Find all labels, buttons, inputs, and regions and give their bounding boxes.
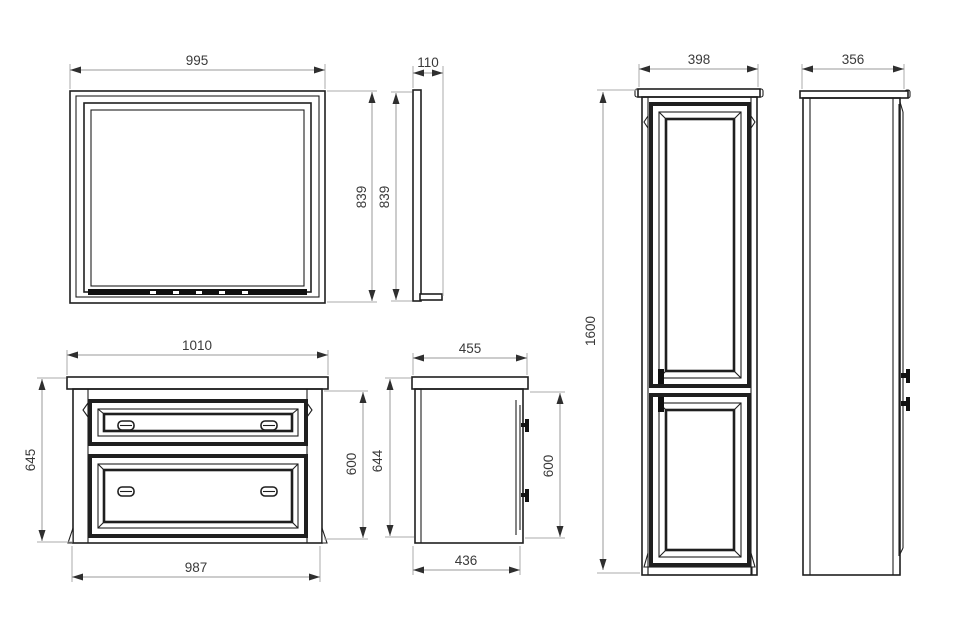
mirror-height-label: 839 [354,186,369,209]
tall-side-crown [800,90,910,98]
vanity-side-height-label: 644 [370,449,385,472]
vanity-top-width-label: 1010 [182,338,212,353]
drawer-handle [261,421,277,430]
dim-mirror-height-front: 839 [327,91,377,302]
tall-side-handles [901,369,910,411]
tall-front-lower-door [651,395,749,565]
vanity-body-depth-label: 436 [455,553,478,568]
furniture-dimension-drawing: 995 839 110 839 [0,0,960,640]
dim-vanity-overall-height: 645 [23,378,72,542]
dim-tall-width: 398 [639,52,758,87]
mirror-depth-label: 110 [417,55,439,70]
dim-mirror-height-side: 839 [377,92,412,301]
drawer-handle [118,487,134,496]
vanity-side-view: 455 644 600 436 [370,341,565,575]
dim-vanity-body-width: 987 [72,546,320,582]
technical-drawing-canvas: 995 839 110 839 [0,0,960,640]
dim-vanity-top-depth: 455 [413,341,527,375]
drawer-handle [118,421,134,430]
tall-side-body [803,98,900,575]
mirror-width-label: 995 [186,53,209,68]
dim-vanity-body-depth: 436 [413,546,520,575]
tall-cabinet-front-view: 398 1600 [583,52,763,575]
tall-door-handle [658,397,664,412]
vanity-side-body [415,389,523,543]
drawer-handle [261,487,277,496]
vanity-countertop [67,377,328,389]
dim-mirror-width: 995 [70,53,325,89]
vanity-height-label: 645 [23,449,38,472]
vanity-side-body-height-label: 600 [541,455,556,478]
tall-front-crown [635,89,763,97]
mirror-side-height-label: 839 [377,186,392,209]
mirror-front-view: 995 839 [70,53,377,303]
dim-tall-height: 1600 [583,90,640,573]
tall-front-upper-door [651,104,749,386]
tall-cabinet-side-view: 356 [800,52,910,575]
dim-vanity-top-width: 1010 [67,338,328,375]
vanity-body-width-label: 987 [185,560,208,575]
dim-tall-depth: 356 [802,52,904,89]
dim-vanity-side-overall-height: 644 [370,378,414,537]
tall-width-label: 398 [688,52,711,67]
tall-depth-label: 356 [842,52,865,67]
mirror-frame [70,91,325,303]
vanity-drawer-top [90,401,306,444]
vanity-drawer-bottom [90,456,306,536]
mirror-side-view: 110 839 [377,55,443,301]
dim-vanity-body-height: 600 [324,391,368,539]
dim-vanity-side-body-height: 600 [525,392,565,538]
vanity-body [68,389,327,543]
vanity-front-view: 1010 645 600 987 [23,338,368,582]
vanity-side-countertop [412,377,528,389]
tall-door-handle [658,369,664,384]
vanity-top-depth-label: 455 [459,341,482,356]
mirror-side-panel [413,90,442,301]
tall-height-label: 1600 [583,316,598,346]
vanity-body-height-label: 600 [344,453,359,476]
mirror-shelf [88,289,307,295]
